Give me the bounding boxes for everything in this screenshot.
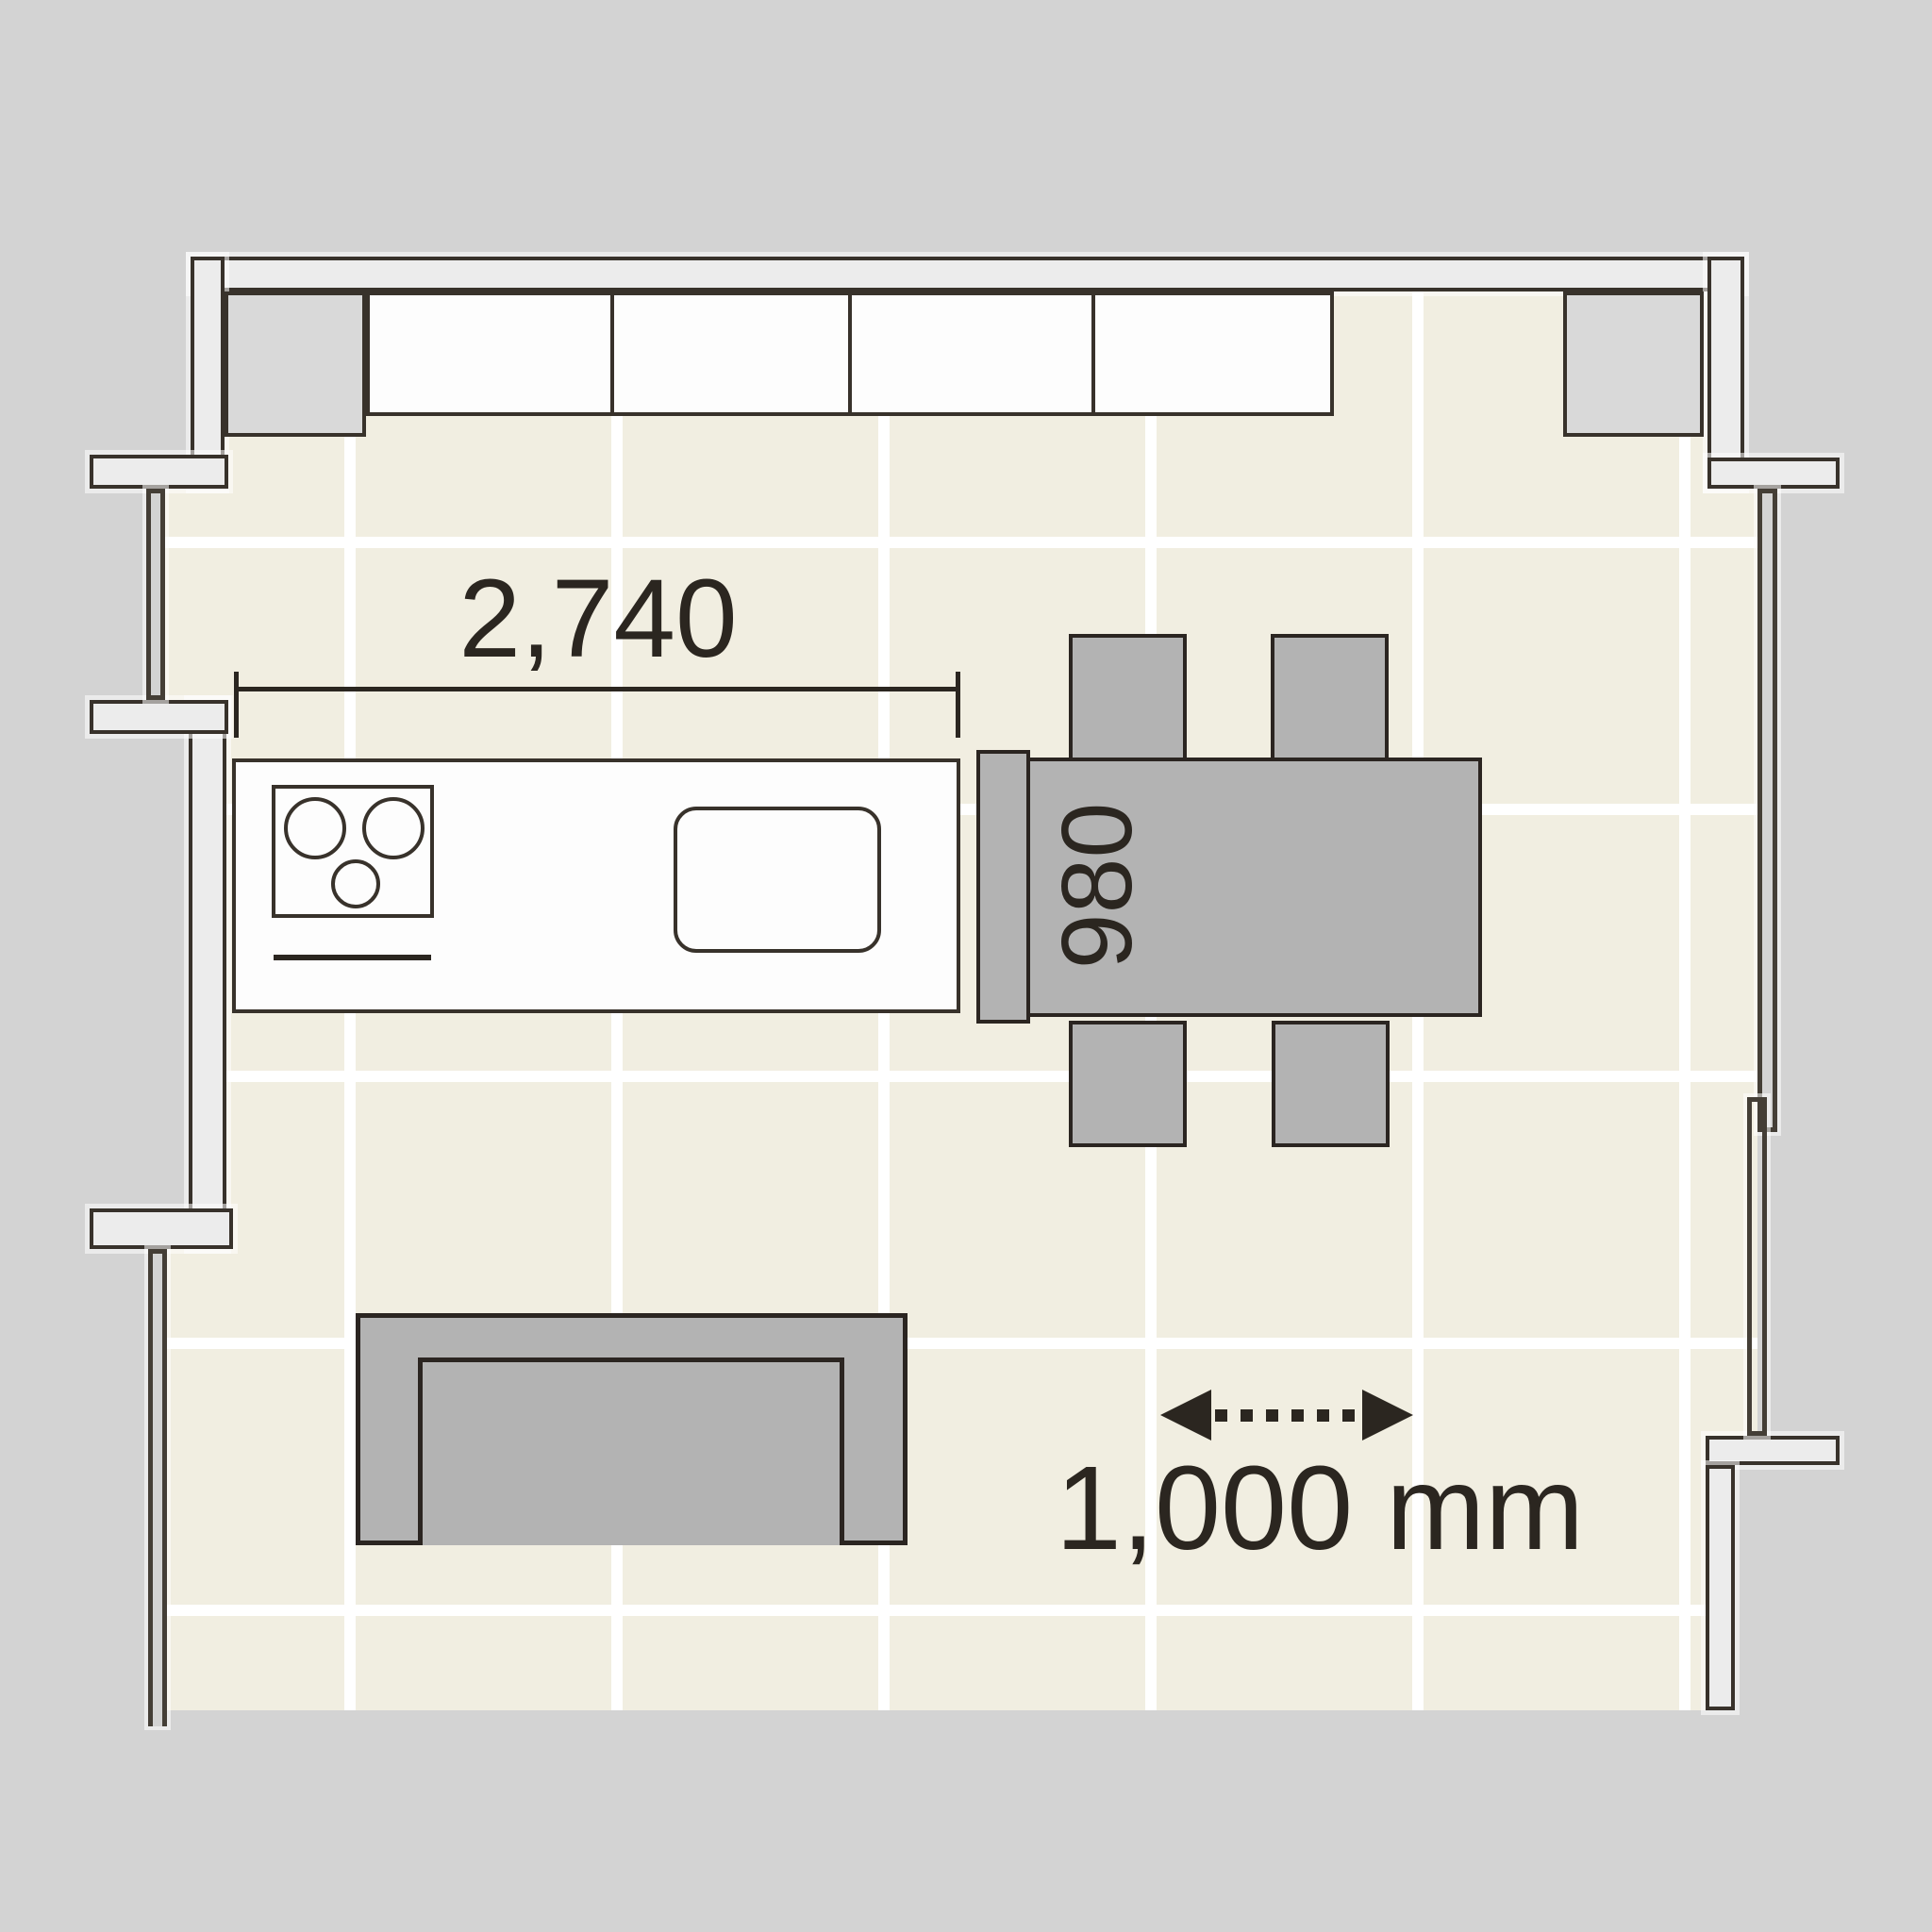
window-right-upper [1757,489,1777,1132]
wall-step-left-3 [90,1208,233,1249]
wall-step-left-2 [90,700,228,734]
wall-right-upper [1707,257,1744,489]
window-glass-line [160,489,165,700]
wall-top [191,257,1744,291]
sofa [356,1313,908,1545]
arrow-dotted-shaft [1215,1409,1358,1422]
window-glass-line [162,1249,167,1726]
wall-step-right-1 [1707,458,1840,489]
grid-line [165,1071,1762,1082]
window-glass-line [1762,1097,1767,1436]
window-left-upper [146,489,165,700]
window-end-cap [146,489,165,493]
window-end-cap [148,1249,167,1254]
sofa-seat [418,1357,844,1545]
wall-step-right-2 [1706,1436,1840,1465]
chair [1069,634,1187,764]
window-right-lower [1747,1097,1767,1436]
cabinet-divider [848,295,852,412]
dimension-tick [956,672,960,738]
window-end-cap [1747,1431,1767,1436]
dimension-tick [234,672,239,738]
arrow-head-left [1160,1390,1211,1441]
arrow-head-right [1362,1390,1413,1441]
chair [1069,1021,1187,1147]
table-end-panel [976,750,1030,1024]
grid-line [165,537,1762,548]
burner [362,797,425,859]
sink [674,807,881,953]
chair [1272,1021,1390,1147]
cabinet-divider [1091,295,1095,412]
counter-width-label: 2,740 [315,563,881,675]
pillar [1563,291,1704,437]
window-glass-line [1747,1097,1752,1436]
window-end-cap [1747,1097,1767,1102]
wall-step-left-1 [90,455,228,489]
table-depth-label: 980 [1047,803,1147,970]
clearance-label: 1,000 mm [1037,1449,1603,1568]
chair [1271,634,1389,764]
wall-left-middle [189,700,226,1249]
wall-cabinets [366,291,1334,416]
grid-line [1679,291,1690,1710]
dimension-line-counter [234,687,959,691]
window-glass-line [148,1249,153,1726]
window-left-lower [148,1249,167,1726]
floor-plan: 980 2,740 1,000 mm [0,0,1932,1932]
wall-right-lower [1706,1465,1735,1710]
oven-handle [274,955,431,960]
window-glass-line [1757,489,1762,1132]
burner [284,797,346,859]
window-glass-line [1773,489,1777,1132]
window-glass-line [146,489,151,700]
burner [331,859,380,908]
window-end-cap [1757,489,1777,493]
grid-line [165,1605,1762,1616]
cabinet-divider [610,295,614,412]
refrigerator [225,291,366,437]
window-end-cap [146,695,165,700]
